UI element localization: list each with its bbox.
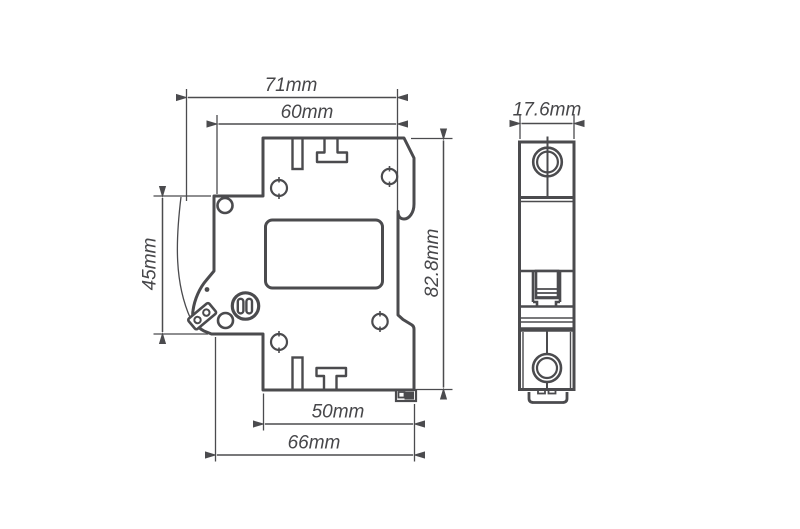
dim-label-50mm: 50mm <box>312 402 365 423</box>
dim-label-45mm: 45mm <box>140 238 161 291</box>
terminal-screw-bottom <box>533 354 561 382</box>
din-latch <box>396 390 416 401</box>
dim-label-60mm: 60mm <box>281 102 334 123</box>
din-clip-tab <box>529 390 567 403</box>
front-view: 17.6mm <box>513 100 582 403</box>
drawing-canvas: 71mm 60mm 45mm 82.8mm 50mm 66mm <box>0 0 800 529</box>
side-view: 71mm 60mm 45mm 82.8mm 50mm 66mm <box>140 75 453 462</box>
dim-front-width: 17.6mm <box>513 100 582 140</box>
clip-pivot-dot <box>205 287 210 292</box>
dim-overall-height: 82.8mm <box>411 139 453 390</box>
toggle-handle <box>536 271 558 298</box>
dim-label-82.8mm: 82.8mm <box>422 229 443 298</box>
dim-label-17.6mm: 17.6mm <box>513 100 582 121</box>
clip-travel-arc <box>177 197 190 319</box>
mcb-technical-drawing: 71mm 60mm 45mm 82.8mm 50mm 66mm <box>0 0 800 529</box>
dim-label-71mm: 71mm <box>265 75 318 96</box>
dim-label-66mm: 66mm <box>288 433 341 454</box>
